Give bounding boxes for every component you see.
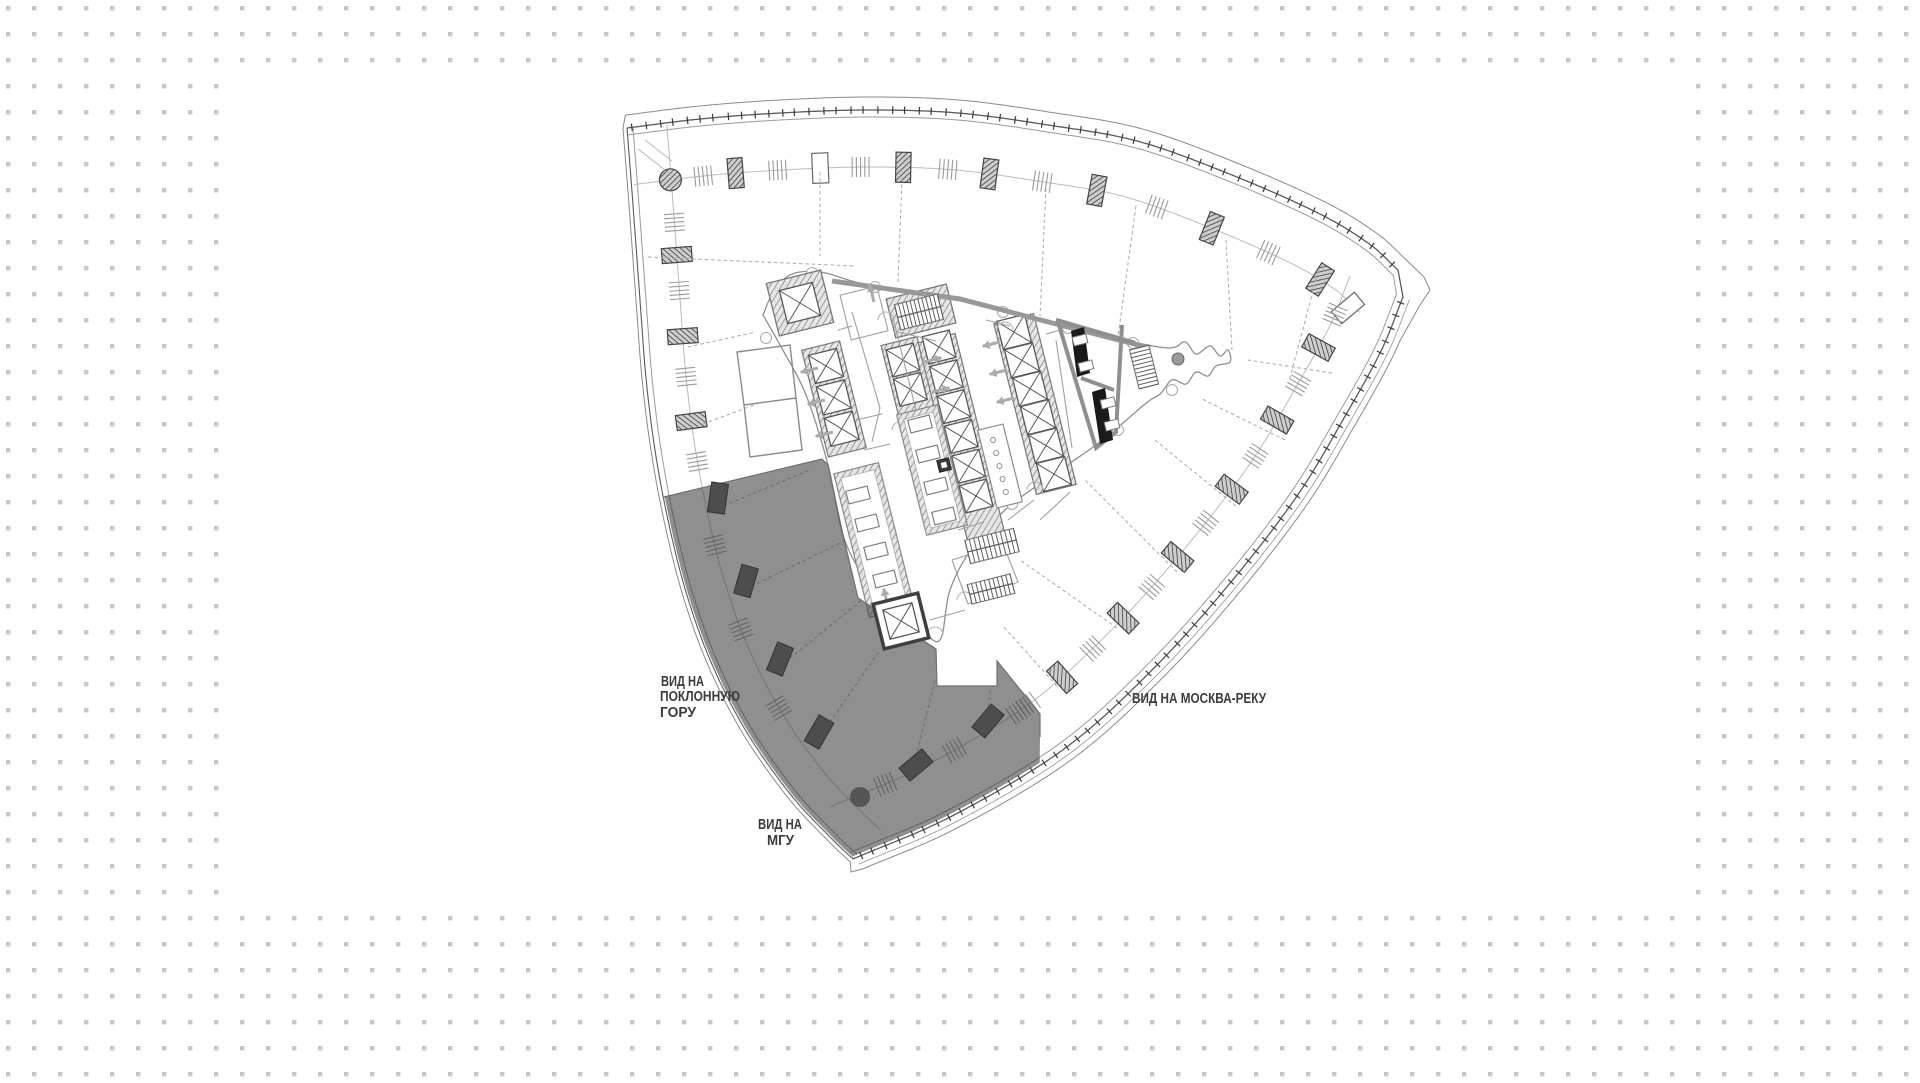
svg-text:ВИД НА МОСКВА-РЕКУ: ВИД НА МОСКВА-РЕКУ <box>1132 691 1267 707</box>
svg-text:ВИД НА: ВИД НА <box>661 674 704 690</box>
svg-text:ВИД НА: ВИД НА <box>758 817 802 833</box>
svg-text:ПОКЛОННУЮ: ПОКЛОННУЮ <box>660 689 740 705</box>
svg-text:ГОРУ: ГОРУ <box>660 705 697 721</box>
svg-text:МГУ: МГУ <box>767 833 795 849</box>
